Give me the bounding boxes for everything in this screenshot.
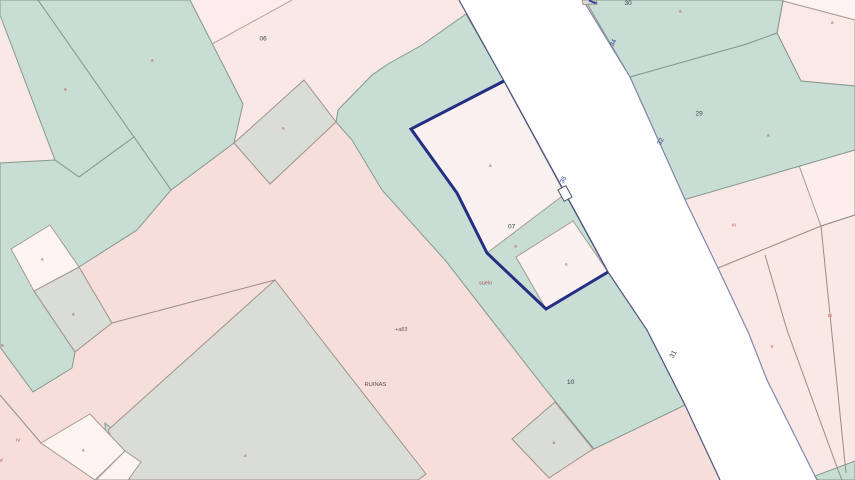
svg-text:30: 30 — [625, 0, 633, 7]
svg-text:II: II — [771, 344, 774, 349]
svg-text:III: III — [732, 223, 736, 228]
svg-text:10: 10 — [567, 379, 575, 386]
svg-text:IV: IV — [16, 438, 20, 443]
svg-text:29: 29 — [696, 111, 704, 118]
svg-text:07: 07 — [508, 224, 516, 231]
svg-text:+a83: +a83 — [395, 327, 407, 333]
svg-text:suelo: suelo — [479, 281, 492, 287]
svg-text:RUINAS: RUINAS — [365, 382, 387, 388]
svg-text:III: III — [828, 313, 832, 318]
svg-text:06: 06 — [260, 35, 268, 42]
